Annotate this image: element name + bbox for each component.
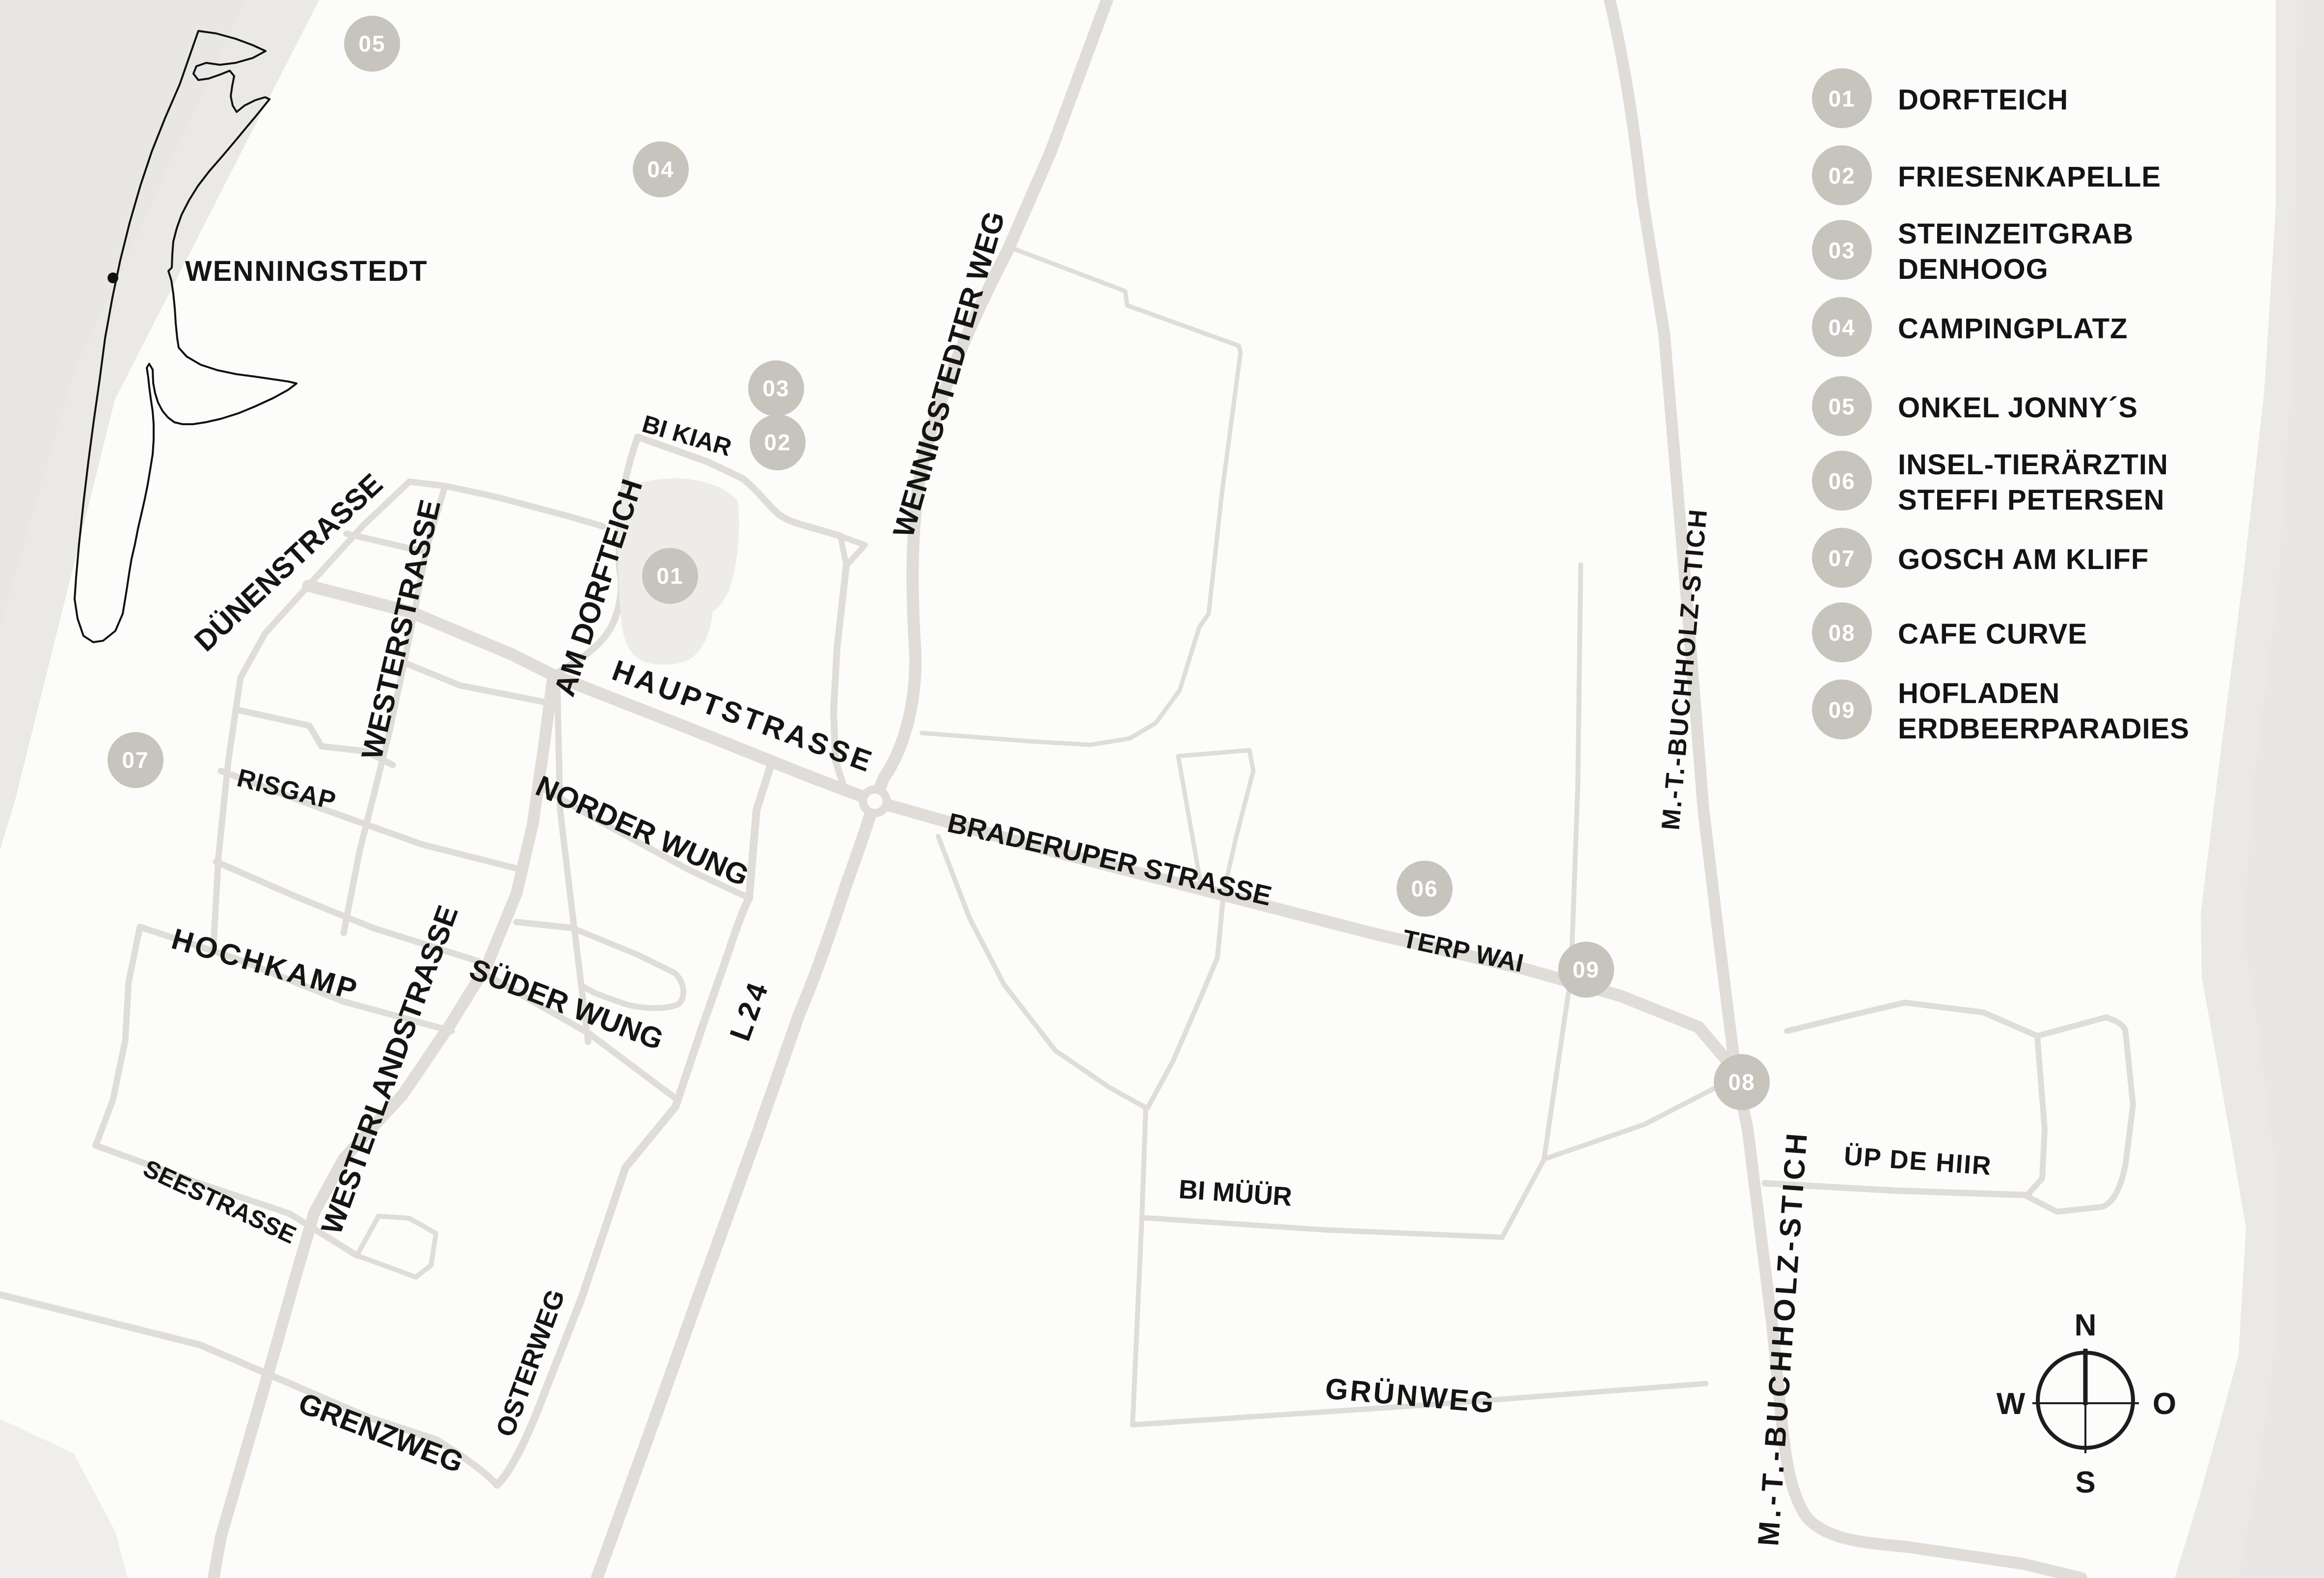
svg-text:08: 08: [1828, 620, 1855, 646]
svg-text:DENHOOG: DENHOOG: [1898, 253, 2049, 285]
svg-text:02: 02: [764, 430, 791, 455]
svg-text:09: 09: [1572, 957, 1599, 982]
svg-text:06: 06: [1411, 876, 1438, 901]
svg-text:CAFE CURVE: CAFE CURVE: [1898, 618, 2087, 650]
svg-text:S: S: [2075, 1466, 2095, 1499]
svg-text:07: 07: [1828, 545, 1855, 571]
svg-text:01: 01: [1828, 86, 1855, 111]
svg-text:FRIESENKAPELLE: FRIESENKAPELLE: [1898, 161, 2161, 193]
svg-text:ERDBEERPARADIES: ERDBEERPARADIES: [1898, 713, 2189, 745]
svg-text:08: 08: [1728, 1069, 1755, 1095]
svg-text:ONKEL JONNY´S: ONKEL JONNY´S: [1898, 392, 2138, 424]
svg-text:03: 03: [762, 376, 789, 401]
svg-text:07: 07: [122, 747, 149, 773]
svg-text:04: 04: [1828, 315, 1855, 340]
svg-text:HOFLADEN: HOFLADEN: [1898, 678, 2060, 709]
svg-text:W: W: [1997, 1387, 2026, 1421]
svg-text:O: O: [2153, 1387, 2176, 1421]
svg-text:03: 03: [1828, 238, 1855, 263]
svg-text:05: 05: [1828, 394, 1855, 419]
svg-text:04: 04: [647, 157, 674, 182]
svg-text:05: 05: [358, 31, 385, 56]
svg-text:02: 02: [1828, 163, 1855, 189]
svg-text:WENNINGSTEDT: WENNINGSTEDT: [185, 255, 428, 287]
svg-text:CAMPINGPLATZ: CAMPINGPLATZ: [1898, 313, 2128, 345]
svg-text:GOSCH AM KLIFF: GOSCH AM KLIFF: [1898, 544, 2149, 575]
svg-text:STEINZEITGRAB: STEINZEITGRAB: [1898, 218, 2134, 250]
svg-text:STEFFI PETERSEN: STEFFI PETERSEN: [1898, 484, 2165, 516]
svg-text:09: 09: [1828, 697, 1855, 723]
svg-text:01: 01: [656, 563, 683, 589]
svg-text:06: 06: [1828, 468, 1855, 494]
svg-text:DORFTEICH: DORFTEICH: [1898, 84, 2068, 116]
svg-text:N: N: [2075, 1308, 2097, 1342]
svg-text:INSEL-TIERÄRZTIN: INSEL-TIERÄRZTIN: [1898, 449, 2168, 481]
